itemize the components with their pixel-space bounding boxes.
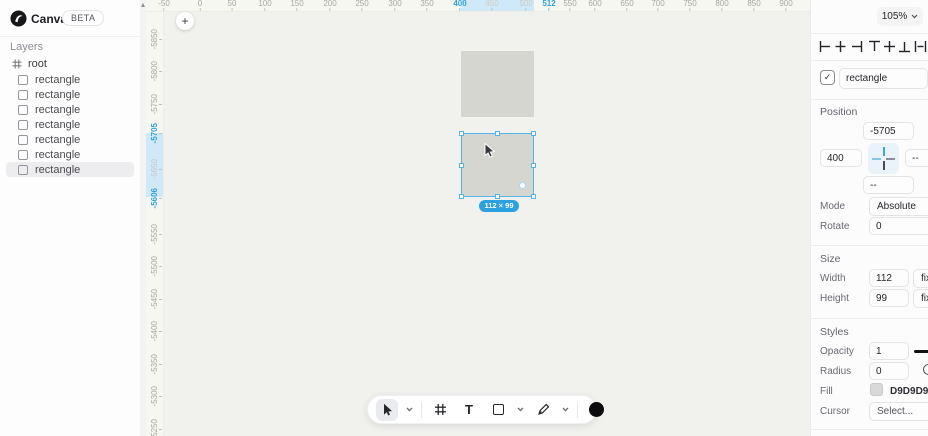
ruler-tick [329, 8, 330, 11]
position-section-title: Position [820, 106, 857, 118]
opacity-slider[interactable] [914, 350, 928, 353]
toolbar-divider [421, 402, 422, 418]
height-input[interactable] [869, 289, 909, 307]
mode-label: Mode [820, 201, 845, 212]
color-swatch-button[interactable] [585, 399, 607, 421]
resize-handle-sw[interactable] [459, 194, 464, 199]
opacity-input[interactable] [869, 342, 909, 360]
layer-root-label: root [28, 58, 47, 70]
ruler-tick-label: 750 [683, 0, 696, 11]
ruler-tick [159, 396, 162, 397]
layer-item-rectangle[interactable]: rectangle [6, 117, 134, 132]
width-mode-select[interactable]: fixed [913, 269, 928, 288]
beta-badge: BETA [62, 10, 104, 26]
section-divider [811, 33, 928, 34]
align-middle-vertical-icon[interactable] [883, 40, 896, 53]
width-input[interactable] [869, 269, 909, 287]
sidebar-header: Canvas BETA [0, 0, 140, 37]
ruler-tick [785, 8, 786, 11]
ruler-tick [569, 8, 570, 11]
layer-item-label: rectangle [35, 104, 80, 116]
layer-item-rectangle[interactable]: rectangle [6, 87, 134, 102]
size-section-title: Size [820, 253, 840, 265]
pen-tool-chevron-icon[interactable] [561, 399, 570, 421]
anchor-left-line [872, 158, 881, 160]
fill-hex-value: D9D9D9 [890, 386, 928, 397]
rectangle-layer-icon [18, 150, 28, 160]
ruler-tick [159, 133, 162, 134]
radius-input[interactable] [869, 362, 909, 380]
pen-tool-button[interactable] [532, 399, 554, 421]
rectangle-layer-icon [18, 135, 28, 145]
canvas-area: -50 0 50 100 150 200 250 300 350 [146, 0, 810, 436]
text-tool-button[interactable]: T [458, 399, 480, 421]
size-badge: 112 × 99 [479, 200, 519, 212]
select-tool-button[interactable] [376, 399, 398, 421]
ruler-tick-label: 600 [588, 0, 601, 11]
ruler-tick [459, 8, 460, 11]
frame-tool-button[interactable] [429, 399, 451, 421]
ruler-tick [594, 8, 595, 11]
ruler-tick-label: 250 [355, 0, 368, 11]
ruler-tick [394, 8, 395, 11]
resize-handle-w[interactable] [459, 163, 464, 168]
resize-handle-nw[interactable] [459, 131, 464, 136]
ruler-tick [199, 8, 200, 11]
app-root: Canvas BETA Layers root rectangle rectan… [0, 0, 928, 436]
chevron-down-icon [911, 14, 918, 19]
anchor-top-line [883, 147, 885, 156]
section-divider [811, 429, 928, 430]
radius-label: Radius [820, 366, 851, 377]
ruler-tick-label: 0 [198, 0, 202, 11]
corner-radius-handle[interactable] [519, 182, 526, 189]
ruler-tick [721, 8, 722, 11]
layer-item-rectangle[interactable]: rectangle [6, 162, 134, 177]
ruler-tick [159, 104, 162, 105]
resize-handle-e[interactable] [531, 163, 536, 168]
ruler-tick-label: 900 [779, 0, 792, 11]
ruler-tick [657, 8, 658, 11]
add-button[interactable]: + [176, 12, 194, 30]
current-color-icon [589, 402, 604, 417]
ruler-tick-label: 350 [420, 0, 433, 11]
ruler-tick [689, 8, 690, 11]
width-label: Width [820, 273, 846, 284]
frame-hash-icon [434, 403, 447, 416]
ruler-tick [164, 8, 165, 11]
ruler-tick [159, 429, 162, 430]
scroll-up-icon[interactable] [141, 3, 145, 7]
fill-color-swatch[interactable] [870, 383, 883, 396]
layer-item-root[interactable]: root [0, 56, 140, 71]
layer-item-label: rectangle [35, 134, 80, 146]
rectangle-layer-icon [18, 90, 28, 100]
mouse-cursor-icon [484, 143, 496, 159]
cursor-select[interactable]: Select... [869, 402, 928, 421]
distribute-horizontal-icon[interactable] [914, 40, 927, 53]
layer-item-label: rectangle [35, 149, 80, 161]
ruler-tick [159, 234, 162, 235]
ruler-tick-label: 150 [290, 0, 303, 11]
canvas-surface[interactable]: + 112 × 99 [163, 11, 810, 436]
align-left-icon[interactable] [819, 40, 832, 53]
ruler-tick-label: 400 [453, 0, 466, 11]
ruler-tick-label: 650 [620, 0, 633, 11]
rectangle-layer-icon [18, 120, 28, 130]
styles-section-title: Styles [820, 326, 849, 338]
ruler-tick [159, 71, 162, 72]
align-top-icon[interactable] [868, 40, 881, 53]
resize-handle-n[interactable] [495, 131, 500, 136]
layer-item-label: rectangle [35, 89, 80, 101]
ruler-tick [361, 8, 362, 11]
fill-label: Fill [820, 386, 833, 397]
opacity-label: Opacity [820, 346, 854, 357]
layer-item-rectangle[interactable]: rectangle [6, 102, 134, 117]
pen-tool-icon [537, 403, 550, 416]
layer-item-rectangle[interactable]: rectangle [6, 72, 134, 87]
resize-handle-se[interactable] [531, 194, 536, 199]
ruler-tick-label: 50 [228, 0, 237, 11]
rotate-label: Rotate [820, 221, 849, 232]
position-y-input[interactable] [863, 122, 914, 140]
toolbar-divider [577, 402, 578, 418]
position-anchor-widget[interactable] [868, 143, 899, 174]
canvas-rectangle-selected[interactable] [461, 133, 534, 197]
rectangle-tool-button[interactable] [487, 399, 509, 421]
inspector-panel: 105% ✓ Position Mode [810, 0, 928, 436]
section-divider [811, 60, 928, 61]
section-divider [811, 318, 928, 319]
ruler-tick-label: 200 [323, 0, 336, 11]
rectangle-layer-icon [18, 165, 28, 175]
frame-hash-icon [12, 59, 22, 69]
layer-list: rectangle rectangle rectangle rectangle … [0, 72, 140, 177]
layer-item-rectangle[interactable]: rectangle [6, 132, 134, 147]
ruler-tick [232, 8, 233, 11]
tools-toolbar: T [367, 395, 597, 424]
position-right-input[interactable] [905, 149, 928, 167]
anchor-right-line [886, 158, 895, 160]
align-center-horizontal-icon[interactable] [834, 40, 847, 53]
cursor-tool-icon [381, 403, 394, 416]
rectangle-tool-icon [493, 404, 504, 415]
resize-handle-s[interactable] [495, 194, 500, 199]
ruler-tick-label: 512 [542, 0, 555, 11]
ruler-tick [159, 364, 162, 365]
select-tool-chevron-icon[interactable] [405, 399, 414, 421]
ruler-tick-label: 850 [747, 0, 760, 11]
app-logo-icon [10, 10, 27, 27]
ruler-tick-label: -50 [158, 0, 170, 11]
layer-name-input[interactable] [839, 68, 928, 89]
ruler-tick [159, 39, 162, 40]
ruler-tick [753, 8, 754, 11]
zoom-level-dropdown[interactable]: 105% [877, 7, 923, 26]
position-x-input[interactable] [820, 149, 862, 167]
ruler-tick [159, 331, 162, 332]
text-tool-icon: T [465, 402, 473, 417]
ruler-tick [159, 198, 162, 199]
ruler-tick-label: 700 [651, 0, 664, 11]
ruler-tick [525, 8, 526, 11]
position-bottom-input[interactable] [863, 176, 914, 194]
zoom-level-value: 105% [882, 11, 908, 22]
rectangle-layer-icon [18, 105, 28, 115]
align-bottom-icon[interactable] [898, 40, 911, 53]
ruler-tick-label: 450 [485, 0, 498, 11]
ruler-tick [296, 8, 297, 11]
canvas-rectangle[interactable] [461, 51, 534, 117]
layers-panel-title: Layers [10, 41, 43, 53]
layer-item-label: rectangle [35, 119, 80, 131]
layer-item-label: rectangle [35, 74, 80, 86]
layer-item-rectangle[interactable]: rectangle [6, 147, 134, 162]
ruler-tick [159, 299, 162, 300]
section-divider [811, 245, 928, 246]
rectangle-layer-icon [18, 75, 28, 85]
section-divider [811, 99, 928, 100]
layers-sidebar: Canvas BETA Layers root rectangle rectan… [0, 0, 140, 436]
ruler-tick [159, 266, 162, 267]
ruler-tick-label: 500 [519, 0, 532, 11]
ruler-tick-label: 550 [563, 0, 576, 11]
ruler-tick-label: 300 [388, 0, 401, 11]
ruler-tick [548, 8, 549, 11]
layer-visible-checkbox[interactable]: ✓ [820, 70, 835, 85]
align-right-icon[interactable] [850, 40, 863, 53]
height-label: Height [820, 293, 849, 304]
cursor-label: Cursor [820, 406, 850, 417]
radius-circle-icon [923, 364, 928, 375]
ruler-tick-label: 800 [715, 0, 728, 11]
ruler-tick [491, 8, 492, 11]
ruler-tick [159, 169, 162, 170]
ruler-tick-label: 100 [258, 0, 271, 11]
mode-select[interactable]: Absolute [869, 197, 928, 216]
ruler-tick [426, 8, 427, 11]
anchor-bottom-line [883, 161, 885, 170]
ruler-tick [264, 8, 265, 11]
vertical-ruler: -5850 -5800 -5750 -5705 -5650 -5606 -555… [146, 11, 164, 436]
resize-handle-ne[interactable] [531, 131, 536, 136]
ruler-tick [626, 8, 627, 11]
rotate-input[interactable] [869, 217, 928, 235]
height-mode-select[interactable]: fixed [913, 289, 928, 308]
horizontal-ruler: -50 0 50 100 150 200 250 300 350 [146, 0, 810, 12]
shape-tool-chevron-icon[interactable] [516, 399, 525, 421]
layer-item-label: rectangle [35, 164, 80, 176]
